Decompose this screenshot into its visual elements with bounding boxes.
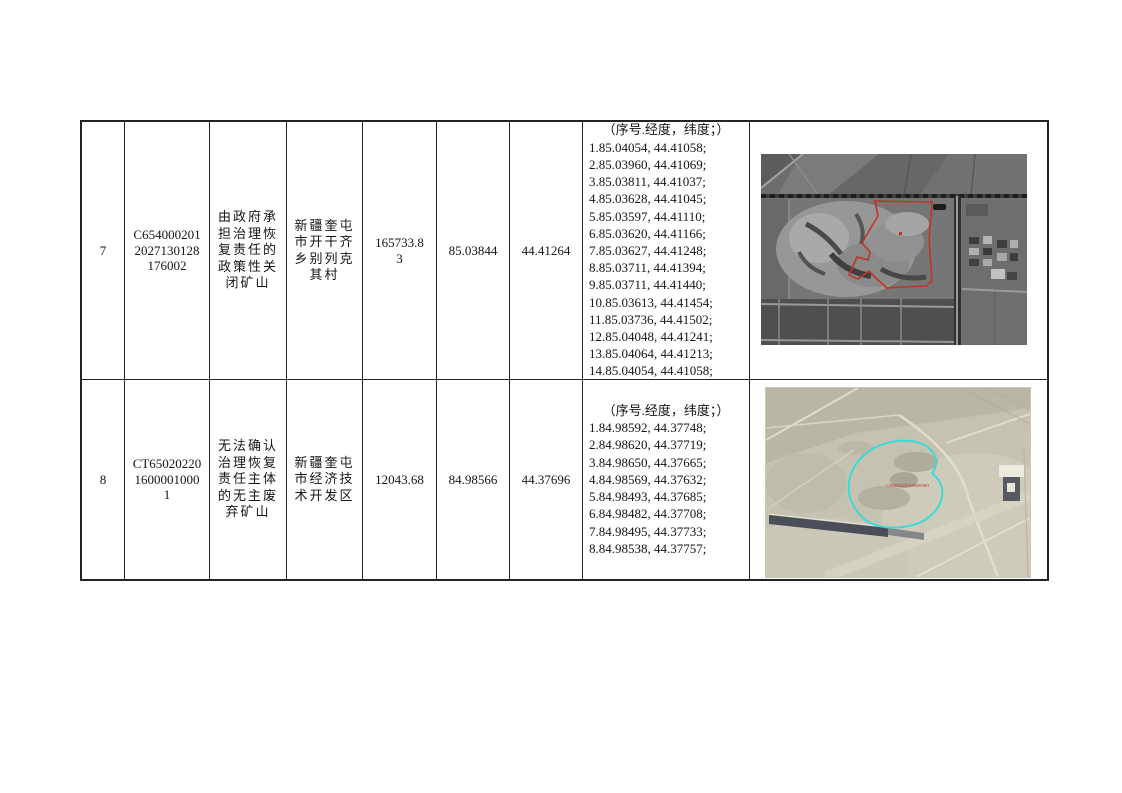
row8-coordinates-cell: （序号.经度，纬度；） 1.84.98592, 44.37748; 2.84.9…	[583, 380, 750, 579]
row8-latitude-cell: 44.37696	[510, 380, 583, 579]
row7-image-cell	[750, 122, 1047, 380]
row8-image-cell: CT650202201600001001	[750, 380, 1047, 579]
row7-area-cell: 165733.8 3	[363, 122, 437, 380]
row8-longitude-cell: 84.98566	[437, 380, 510, 579]
row7-plot-id-cell: C654000201 2027130128 176002	[125, 122, 210, 380]
row8-type-cell: 无法确认 治理恢复 责任主体 的无主废 弃矿山	[210, 380, 287, 579]
satellite-image-desert: CT650202201600001001	[765, 387, 1031, 578]
row8-area-cell: 12043.68	[363, 380, 437, 579]
coords-header: （序号.经度，纬度；）	[583, 122, 749, 139]
satellite-image-farmland	[761, 154, 1027, 345]
coords-header: （序号.经度，纬度；）	[583, 402, 749, 419]
coords-list: 1.85.04054, 44.41058; 2.85.03960, 44.410…	[583, 139, 749, 380]
row7-type-cell: 由政府承 担治理恢 复责任的 政策性关 闭矿山	[210, 122, 287, 380]
row8-index-cell: 8	[82, 380, 125, 579]
coords-list: 1.84.98592, 44.37748; 2.84.98620, 44.377…	[583, 419, 749, 557]
row8-location-cell: 新疆奎屯 市经济技 术开发区	[287, 380, 363, 579]
row7-latitude-cell: 44.41264	[510, 122, 583, 380]
row7-longitude-cell: 85.03844	[437, 122, 510, 380]
plot-id-label: CT650202201600001001	[886, 483, 930, 488]
row8-plot-id-cell: CT65020220 1600001000 1	[125, 380, 210, 579]
record-table: 7 C654000201 2027130128 176002 由政府承 担治理恢…	[80, 120, 1049, 581]
row7-location-cell: 新疆奎屯 市开干齐 乡别列克 其村	[287, 122, 363, 380]
row7-index-cell: 7	[82, 122, 125, 380]
row7-coordinates-cell: （序号.经度，纬度；） 1.85.04054, 44.41058; 2.85.0…	[583, 122, 750, 380]
